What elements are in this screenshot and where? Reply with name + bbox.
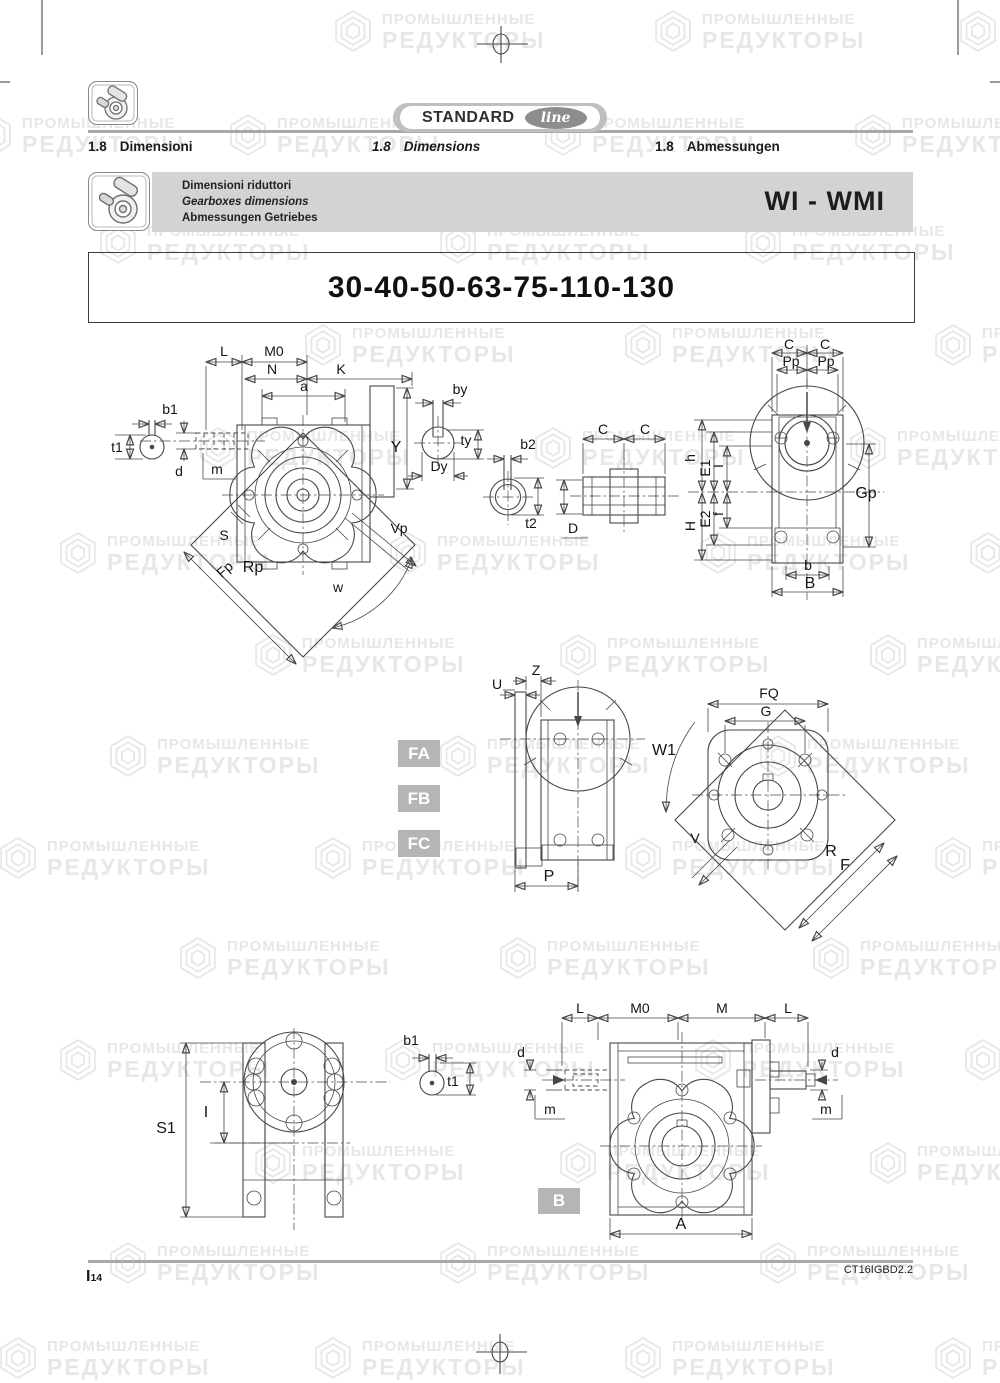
- banner-line-it: Dimensioni riduttori: [182, 178, 317, 194]
- svg-text:Z: Z: [532, 662, 541, 678]
- svg-text:m: m: [544, 1101, 556, 1117]
- badge-fc: FC: [398, 830, 440, 857]
- svg-text:M0: M0: [630, 1000, 650, 1016]
- svg-text:H: H: [682, 521, 698, 531]
- badge-fa: FA: [398, 740, 440, 767]
- svg-text:N: N: [267, 361, 277, 377]
- svg-text:d: d: [175, 463, 183, 479]
- svg-text:K: K: [336, 361, 346, 377]
- svg-text:Gp: Gp: [855, 485, 876, 502]
- svg-text:F: F: [840, 857, 850, 874]
- sizes-title: 30-40-50-63-75-110-130: [328, 271, 675, 305]
- section-header-de: 1.8 Abmessungen: [655, 139, 780, 154]
- svg-text:b: b: [804, 557, 812, 573]
- drawing-flange-face: FQ G W1 V R F: [652, 685, 897, 941]
- svg-text:M0: M0: [264, 343, 284, 359]
- svg-text:S1: S1: [156, 1120, 176, 1137]
- sizes-title-box: 30-40-50-63-75-110-130: [88, 252, 915, 323]
- svg-text:L: L: [576, 1000, 584, 1016]
- svg-text:h: h: [682, 454, 698, 462]
- svg-text:D: D: [568, 520, 578, 536]
- drawing-rear-view: C C Pp Pp h E1 I E2 H f Gp: [682, 336, 884, 600]
- svg-text:a: a: [300, 378, 308, 394]
- svg-text:L: L: [220, 343, 228, 359]
- svg-text:w: w: [332, 579, 344, 595]
- document-code: CT16IGBD2.2: [844, 1264, 913, 1276]
- svg-text:W1: W1: [652, 742, 676, 759]
- svg-text:m: m: [211, 461, 223, 477]
- banner-line-de: Abmessungen Getriebes: [182, 210, 317, 226]
- drawing-top-view: S1 I b1 t1: [156, 1028, 476, 1230]
- standard-line-logo: STANDARD line: [393, 103, 607, 132]
- svg-text:t2: t2: [525, 515, 537, 531]
- svg-text:Pp: Pp: [817, 353, 834, 369]
- svg-text:ty: ty: [461, 432, 472, 448]
- brand-standard-text: STANDARD: [422, 109, 515, 127]
- svg-text:P: P: [544, 868, 555, 885]
- svg-text:d: d: [831, 1044, 839, 1060]
- page-number: I14: [86, 1268, 102, 1286]
- svg-text:M: M: [716, 1000, 728, 1016]
- gearbox-icon-top: [88, 81, 138, 125]
- svg-text:Pp: Pp: [782, 353, 799, 369]
- svg-text:I: I: [710, 464, 726, 468]
- section-header-en: 1.8 Dimensions: [372, 139, 480, 154]
- svg-text:S: S: [219, 527, 228, 543]
- svg-text:C: C: [598, 421, 608, 437]
- section-header-it: 1.8 Dimensioni: [88, 139, 193, 154]
- svg-text:L: L: [784, 1000, 792, 1016]
- drawing-front-view: b1 t1 d m: [111, 343, 416, 664]
- svg-text:Rp: Rp: [243, 559, 264, 576]
- svg-text:t1: t1: [111, 439, 123, 455]
- svg-text:f: f: [710, 512, 726, 516]
- svg-text:m: m: [820, 1101, 832, 1117]
- drawing-side-view: Z U P: [492, 662, 645, 895]
- svg-text:b2: b2: [520, 436, 536, 452]
- svg-text:d: d: [517, 1044, 525, 1060]
- drawing-hollow-bore: b2 t2: [483, 436, 544, 531]
- svg-text:B: B: [805, 575, 816, 592]
- drawing-shaft-section: C C D: [556, 421, 680, 538]
- svg-text:b1: b1: [403, 1032, 419, 1048]
- svg-text:A: A: [676, 1216, 687, 1233]
- drawing-output-shaft: by ty Dy: [408, 381, 484, 481]
- svg-text:Fp: Fp: [213, 558, 236, 581]
- svg-text:I: I: [204, 1104, 208, 1121]
- badge-b: B: [538, 1188, 580, 1214]
- svg-text:U: U: [492, 676, 502, 692]
- svg-text:Y: Y: [391, 439, 402, 456]
- badge-fb: FB: [398, 785, 440, 812]
- svg-text:Vp: Vp: [390, 520, 407, 536]
- brand-line-text: line: [525, 107, 587, 129]
- svg-text:by: by: [453, 381, 468, 397]
- svg-text:C: C: [640, 421, 650, 437]
- svg-text:V: V: [690, 830, 700, 846]
- svg-text:FQ: FQ: [759, 685, 779, 701]
- banner-line-en: Gearboxes dimensions: [182, 194, 317, 210]
- svg-text:C: C: [820, 336, 830, 352]
- svg-text:G: G: [761, 703, 772, 719]
- svg-text:Dy: Dy: [430, 458, 447, 474]
- svg-text:C: C: [784, 336, 794, 352]
- catalog-page: ПРОМЫШЛЕННЫЕРЕДУКТОРЫПРОМЫШЛЕННЫЕРЕДУКТО…: [0, 0, 1000, 1383]
- series-name: WI - WMI: [765, 186, 885, 217]
- svg-text:R: R: [825, 843, 837, 860]
- svg-text:t1: t1: [447, 1073, 459, 1089]
- footer-rule: [88, 1260, 913, 1263]
- section-banner: Dimensioni riduttori Gearboxes dimension…: [152, 172, 913, 232]
- svg-text:b1: b1: [162, 401, 178, 417]
- gearbox-icon-banner: [88, 172, 150, 231]
